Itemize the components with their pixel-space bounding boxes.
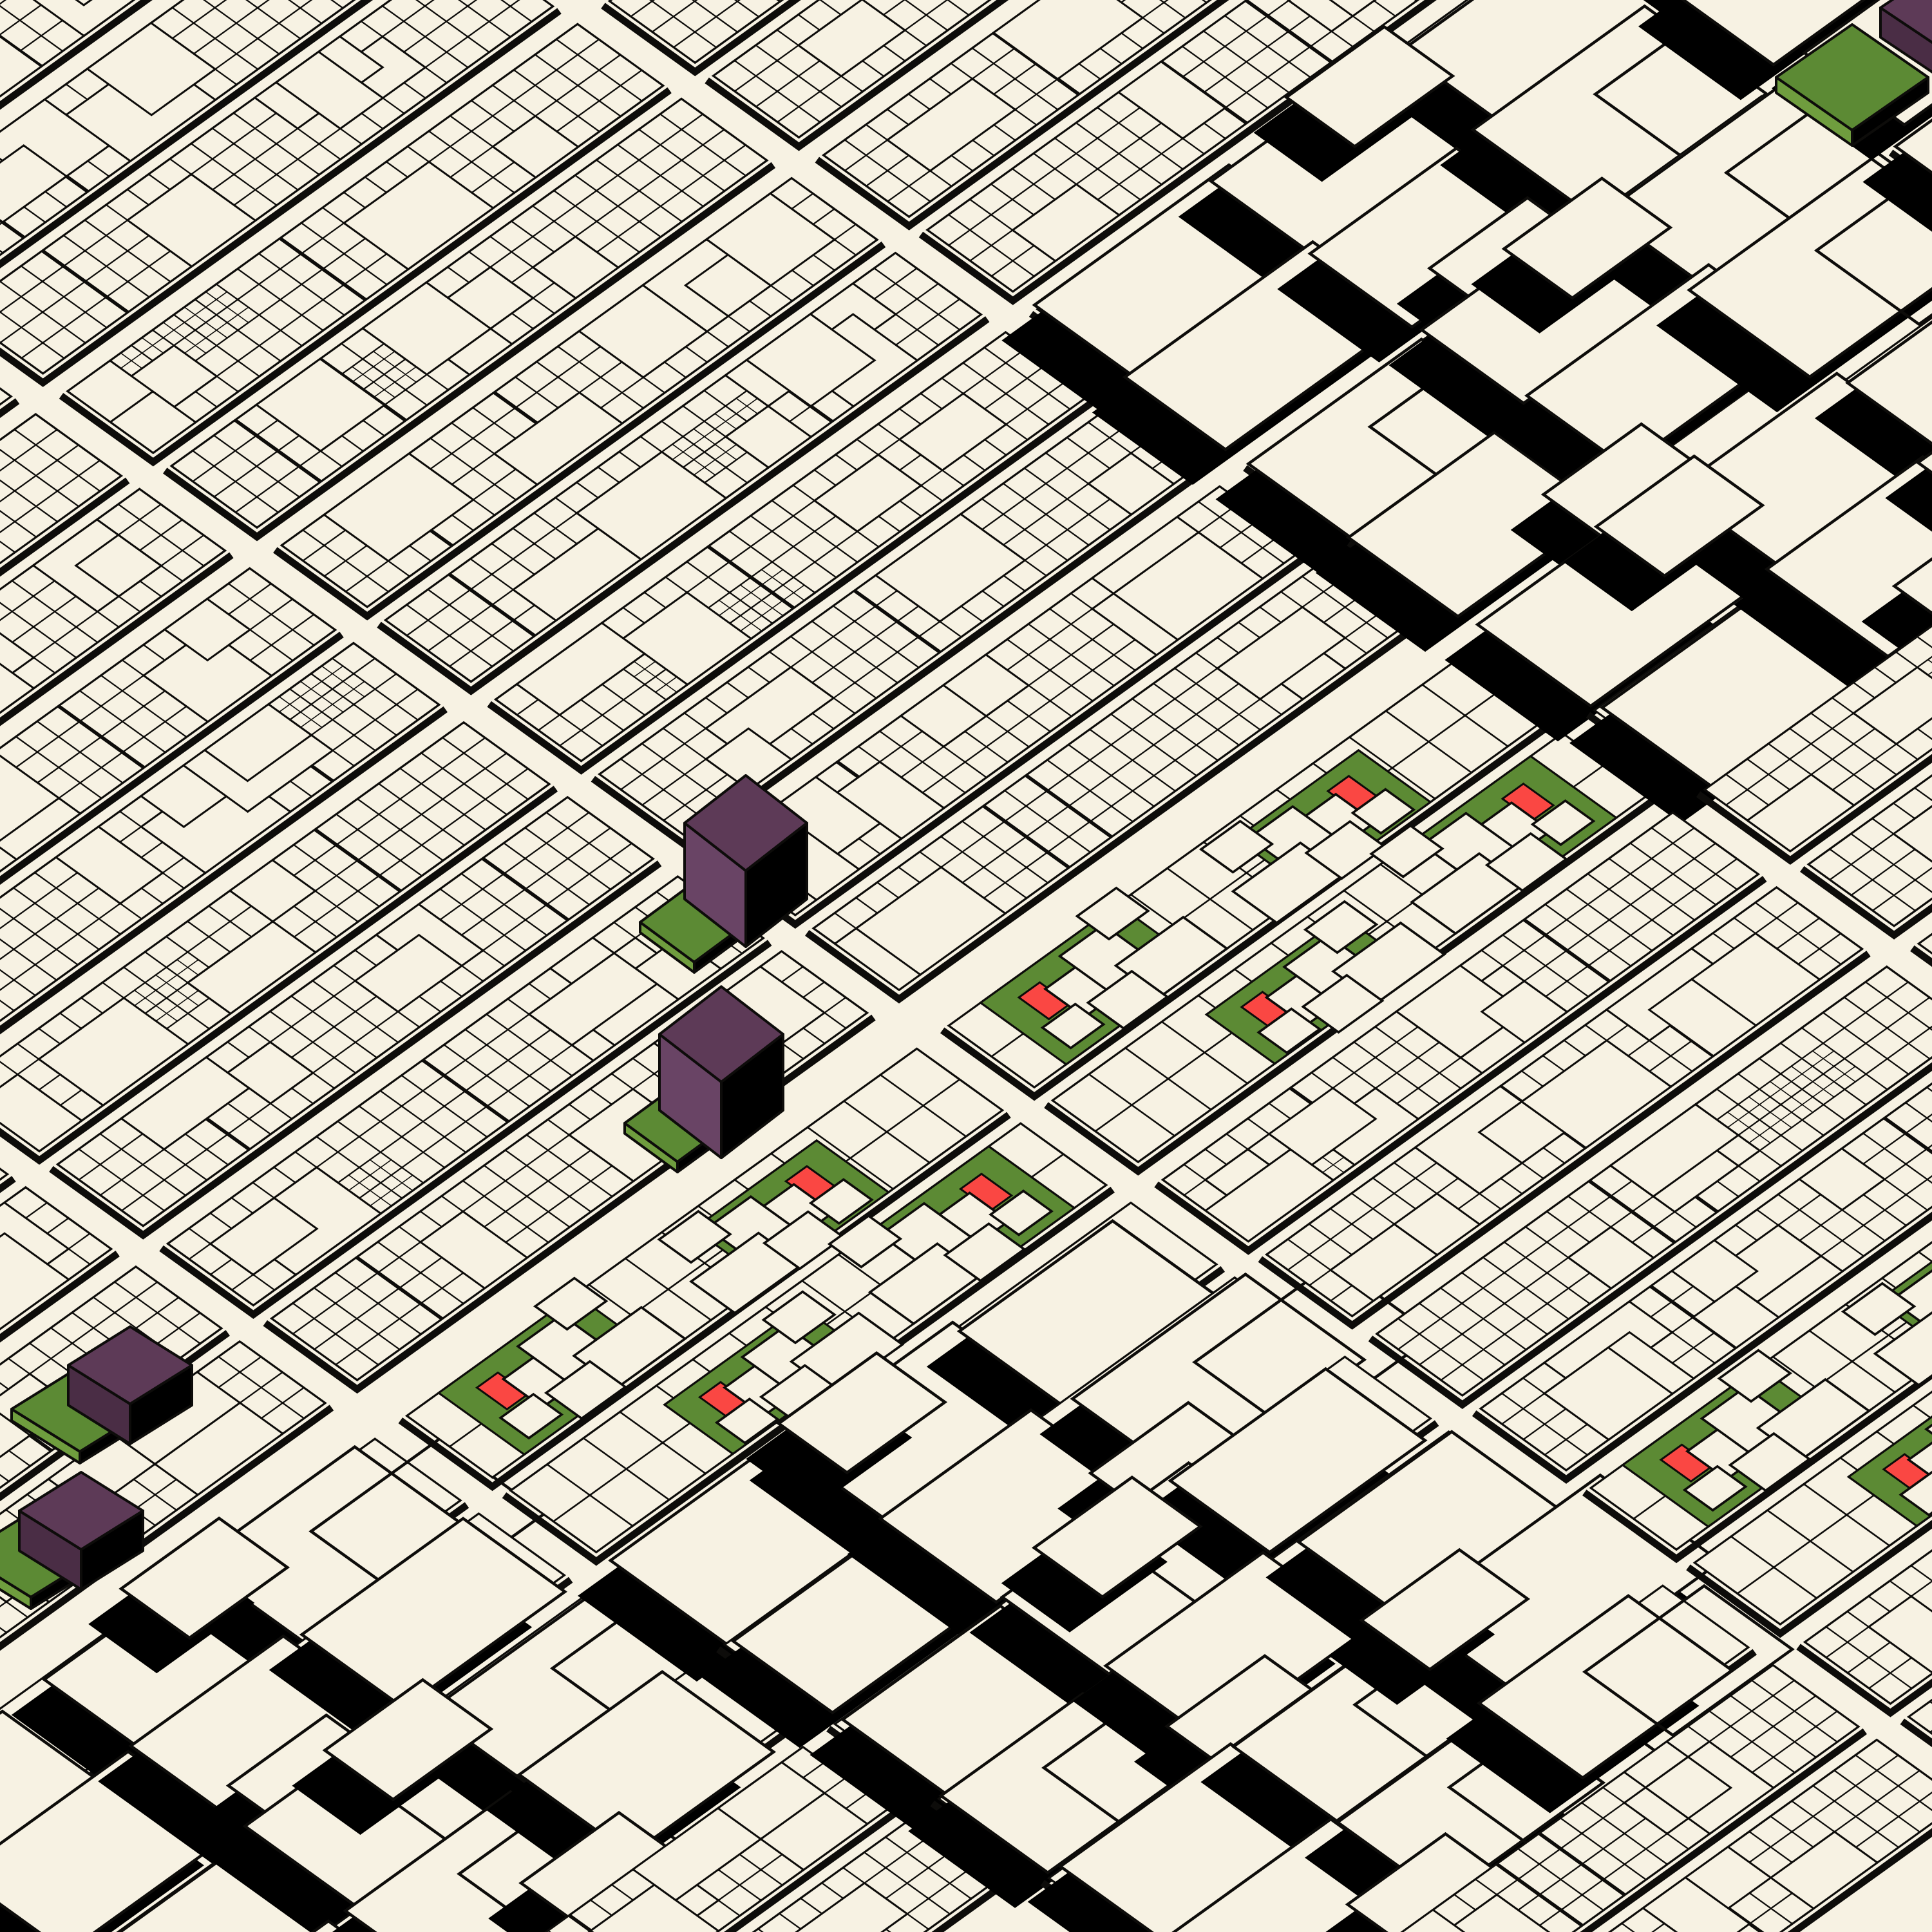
artwork-frame: [0, 0, 1932, 1932]
generative-isometric-city-canvas: [0, 0, 1932, 1932]
